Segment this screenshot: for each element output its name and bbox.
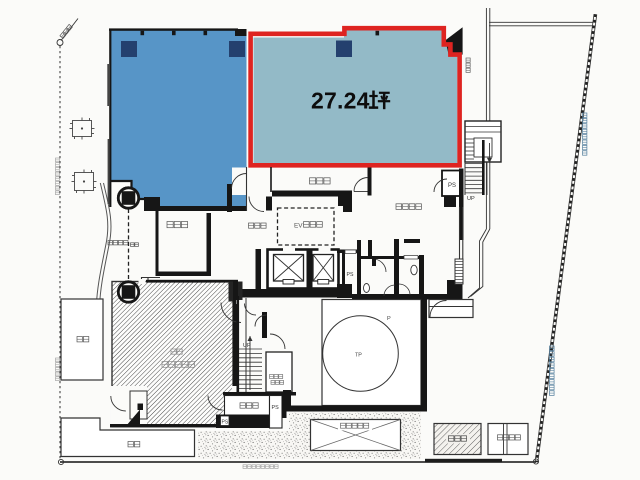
svg-text:TP: TP [355,353,362,359]
svg-text:27.24: 27.24 [311,88,370,114]
svg-text:PS: PS [448,183,456,189]
svg-text:EV: EV [294,223,303,230]
svg-text:PS: PS [272,405,280,411]
svg-text:UP: UP [467,196,475,202]
svg-text:PS: PS [347,272,354,278]
svg-text:P: P [387,316,391,322]
svg-text:PS: PS [222,420,229,426]
svg-text:UP: UP [243,343,251,349]
